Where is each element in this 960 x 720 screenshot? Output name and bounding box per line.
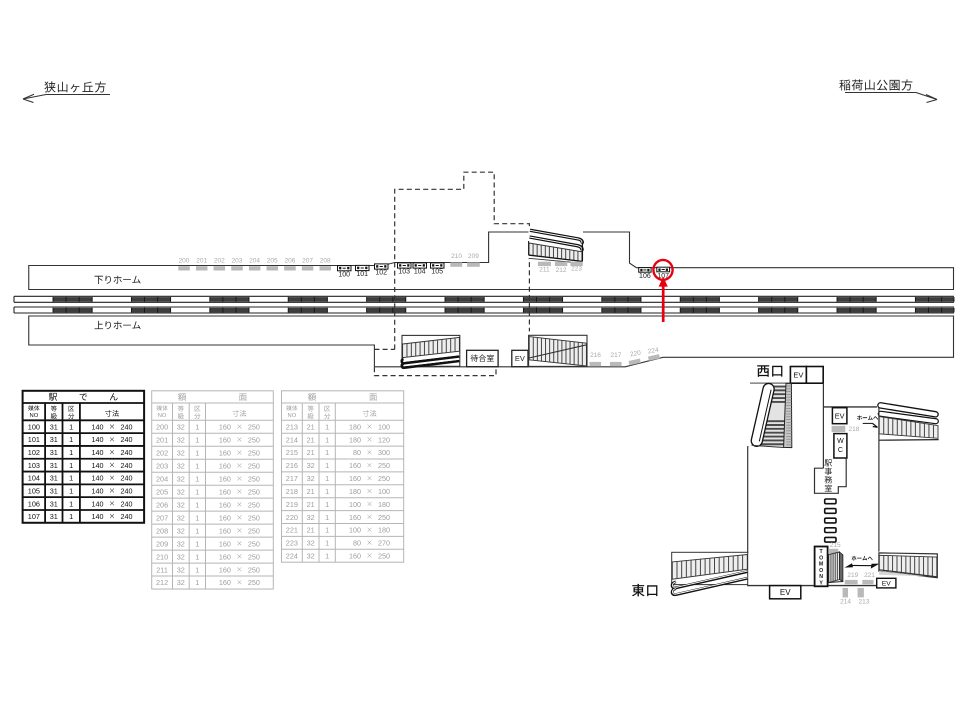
- svg-text:1: 1: [195, 487, 199, 496]
- svg-text:211: 211: [539, 266, 550, 273]
- svg-text:240: 240: [121, 487, 133, 496]
- svg-text:205: 205: [267, 257, 278, 264]
- svg-text:106: 106: [28, 499, 40, 508]
- svg-text:205: 205: [156, 487, 168, 496]
- svg-text:EV: EV: [515, 354, 525, 363]
- svg-text:EV: EV: [780, 588, 791, 597]
- svg-text:31: 31: [50, 422, 58, 431]
- svg-text:1: 1: [195, 552, 199, 561]
- svg-text:218: 218: [848, 426, 859, 433]
- svg-text:201: 201: [156, 436, 168, 445]
- svg-text:21: 21: [307, 448, 315, 457]
- svg-text:32: 32: [177, 513, 185, 522]
- svg-text:221: 221: [286, 526, 298, 535]
- svg-text:107: 107: [28, 512, 40, 521]
- svg-text:32: 32: [177, 500, 185, 509]
- svg-text:100: 100: [349, 500, 361, 509]
- svg-text:223: 223: [571, 266, 582, 273]
- svg-text:31: 31: [50, 499, 58, 508]
- svg-text:250: 250: [378, 461, 390, 470]
- svg-text:102: 102: [28, 448, 40, 457]
- svg-text:W: W: [837, 438, 844, 445]
- svg-text:212: 212: [556, 267, 567, 274]
- svg-text:80: 80: [353, 539, 361, 548]
- svg-text:270: 270: [378, 539, 390, 548]
- svg-text:32: 32: [307, 461, 315, 470]
- svg-text:32: 32: [307, 552, 315, 561]
- svg-text:31: 31: [50, 435, 58, 444]
- svg-text:200: 200: [156, 423, 168, 432]
- svg-text:209: 209: [468, 253, 479, 260]
- svg-text:214: 214: [286, 435, 298, 444]
- svg-text:240: 240: [121, 422, 133, 431]
- svg-text:101: 101: [356, 271, 368, 278]
- svg-text:160: 160: [349, 513, 361, 522]
- svg-text:1: 1: [325, 513, 329, 522]
- svg-text:32: 32: [307, 539, 315, 548]
- svg-text:140: 140: [92, 512, 104, 521]
- svg-text:1: 1: [195, 565, 199, 574]
- svg-text:220: 220: [286, 513, 298, 522]
- svg-text:216: 216: [286, 461, 298, 470]
- svg-text:208: 208: [156, 526, 168, 535]
- svg-text:1: 1: [195, 448, 199, 457]
- svg-text:215: 215: [286, 448, 298, 457]
- svg-text:1: 1: [69, 512, 73, 521]
- svg-text:160: 160: [349, 552, 361, 561]
- svg-text:250: 250: [248, 578, 260, 587]
- svg-text:32: 32: [307, 474, 315, 483]
- svg-text:100: 100: [378, 422, 390, 431]
- svg-text:NO: NO: [288, 413, 297, 419]
- svg-text:106: 106: [639, 273, 651, 280]
- svg-text:250: 250: [248, 448, 260, 457]
- svg-text:1: 1: [325, 526, 329, 535]
- svg-text:160: 160: [219, 436, 231, 445]
- svg-text:32: 32: [177, 565, 185, 574]
- svg-text:160: 160: [219, 474, 231, 483]
- svg-text:240: 240: [121, 499, 133, 508]
- svg-text:210: 210: [156, 552, 168, 561]
- svg-text:250: 250: [248, 539, 260, 548]
- svg-text:32: 32: [177, 578, 185, 587]
- svg-text:180: 180: [378, 500, 390, 509]
- svg-text:1: 1: [69, 448, 73, 457]
- svg-text:31: 31: [50, 474, 58, 483]
- svg-text:207: 207: [302, 257, 313, 264]
- svg-text:32: 32: [177, 552, 185, 561]
- svg-text:101: 101: [28, 435, 40, 444]
- svg-text:240: 240: [121, 474, 133, 483]
- svg-text:160: 160: [219, 448, 231, 457]
- svg-text:1: 1: [325, 487, 329, 496]
- svg-text:160: 160: [219, 552, 231, 561]
- svg-text:250: 250: [378, 513, 390, 522]
- svg-text:1: 1: [69, 461, 73, 470]
- svg-text:21: 21: [307, 435, 315, 444]
- svg-text:31: 31: [50, 512, 58, 521]
- svg-text:32: 32: [177, 474, 185, 483]
- svg-text:207: 207: [156, 513, 168, 522]
- svg-text:C: C: [838, 447, 843, 454]
- svg-text:140: 140: [92, 422, 104, 431]
- svg-text:250: 250: [248, 565, 260, 574]
- svg-text:1: 1: [325, 448, 329, 457]
- svg-text:N: N: [819, 574, 823, 580]
- svg-text:EV: EV: [882, 581, 892, 588]
- svg-text:203: 203: [231, 257, 242, 264]
- svg-text:203: 203: [156, 461, 168, 470]
- svg-text:180: 180: [349, 435, 361, 444]
- svg-text:250: 250: [248, 474, 260, 483]
- svg-text:1: 1: [195, 539, 199, 548]
- svg-text:1: 1: [325, 500, 329, 509]
- svg-text:160: 160: [219, 565, 231, 574]
- svg-text:213: 213: [286, 422, 298, 431]
- svg-text:1: 1: [195, 526, 199, 535]
- svg-text:240: 240: [121, 461, 133, 470]
- svg-text:31: 31: [50, 487, 58, 496]
- svg-text:160: 160: [219, 578, 231, 587]
- svg-text:1: 1: [325, 552, 329, 561]
- svg-text:1: 1: [69, 474, 73, 483]
- svg-text:160: 160: [219, 526, 231, 535]
- svg-text:100: 100: [338, 271, 350, 278]
- svg-text:213: 213: [858, 599, 869, 606]
- svg-text:31: 31: [50, 448, 58, 457]
- svg-text:180: 180: [349, 487, 361, 496]
- svg-text:140: 140: [92, 474, 104, 483]
- svg-text:140: 140: [92, 448, 104, 457]
- svg-text:32: 32: [177, 526, 185, 535]
- svg-text:160: 160: [219, 513, 231, 522]
- svg-text:1: 1: [69, 435, 73, 444]
- svg-text:160: 160: [219, 423, 231, 432]
- svg-text:250: 250: [248, 487, 260, 496]
- svg-text:100: 100: [378, 487, 390, 496]
- svg-text:204: 204: [156, 474, 168, 483]
- svg-text:102: 102: [375, 270, 387, 277]
- svg-text:160: 160: [219, 500, 231, 509]
- svg-text:224: 224: [286, 552, 298, 561]
- svg-text:250: 250: [248, 461, 260, 470]
- svg-text:250: 250: [378, 474, 390, 483]
- svg-text:211: 211: [156, 565, 168, 574]
- svg-text:103: 103: [28, 461, 40, 470]
- svg-text:104: 104: [28, 474, 40, 483]
- svg-text:M: M: [819, 562, 823, 568]
- svg-text:EV: EV: [793, 371, 803, 380]
- svg-text:215: 215: [830, 542, 841, 549]
- svg-text:160: 160: [349, 474, 361, 483]
- svg-text:140: 140: [92, 487, 104, 496]
- svg-text:1: 1: [325, 539, 329, 548]
- svg-text:32: 32: [177, 448, 185, 457]
- svg-text:240: 240: [121, 512, 133, 521]
- svg-text:221: 221: [864, 572, 875, 579]
- svg-text:O: O: [819, 568, 823, 574]
- svg-text:80: 80: [353, 448, 361, 457]
- svg-text:1: 1: [325, 422, 329, 431]
- svg-text:140: 140: [92, 499, 104, 508]
- svg-text:1: 1: [195, 500, 199, 509]
- svg-text:209: 209: [156, 539, 168, 548]
- svg-text:120: 120: [378, 435, 390, 444]
- svg-text:32: 32: [177, 436, 185, 445]
- svg-text:206: 206: [156, 500, 168, 509]
- svg-text:103: 103: [398, 269, 410, 276]
- svg-text:219: 219: [286, 500, 298, 509]
- svg-text:1: 1: [195, 474, 199, 483]
- svg-text:1: 1: [325, 461, 329, 470]
- svg-text:217: 217: [610, 352, 621, 359]
- svg-text:1: 1: [69, 422, 73, 431]
- svg-text:32: 32: [177, 487, 185, 496]
- svg-text:200: 200: [179, 257, 190, 264]
- svg-text:240: 240: [121, 435, 133, 444]
- svg-text:105: 105: [431, 269, 443, 276]
- svg-text:300: 300: [378, 448, 390, 457]
- svg-text:204: 204: [249, 257, 260, 264]
- svg-text:32: 32: [177, 539, 185, 548]
- svg-text:32: 32: [307, 513, 315, 522]
- svg-text:216: 216: [590, 352, 601, 359]
- svg-text:1: 1: [69, 499, 73, 508]
- svg-text:180: 180: [378, 526, 390, 535]
- svg-text:NO: NO: [30, 413, 39, 419]
- svg-text:140: 140: [92, 435, 104, 444]
- svg-text:100: 100: [349, 526, 361, 535]
- svg-text:1: 1: [325, 474, 329, 483]
- svg-text:201: 201: [196, 257, 207, 264]
- svg-text:208: 208: [320, 257, 331, 264]
- svg-text:180: 180: [349, 422, 361, 431]
- svg-text:202: 202: [156, 448, 168, 457]
- svg-text:140: 140: [92, 461, 104, 470]
- svg-text:250: 250: [378, 552, 390, 561]
- svg-text:160: 160: [219, 487, 231, 496]
- svg-text:217: 217: [286, 474, 298, 483]
- svg-text:32: 32: [177, 461, 185, 470]
- svg-text:240: 240: [121, 448, 133, 457]
- svg-text:219: 219: [847, 572, 858, 579]
- svg-text:EV: EV: [835, 411, 845, 420]
- svg-text:100: 100: [28, 422, 40, 431]
- svg-text:1: 1: [195, 436, 199, 445]
- svg-text:O: O: [819, 555, 823, 561]
- svg-text:250: 250: [248, 552, 260, 561]
- svg-text:250: 250: [248, 436, 260, 445]
- svg-text:1: 1: [69, 487, 73, 496]
- svg-text:21: 21: [307, 500, 315, 509]
- svg-text:250: 250: [248, 513, 260, 522]
- svg-text:Y: Y: [819, 581, 823, 587]
- svg-text:21: 21: [307, 526, 315, 535]
- svg-text:105: 105: [28, 487, 40, 496]
- svg-text:250: 250: [248, 526, 260, 535]
- svg-text:250: 250: [248, 500, 260, 509]
- svg-text:160: 160: [349, 461, 361, 470]
- svg-text:160: 160: [219, 461, 231, 470]
- svg-text:218: 218: [286, 487, 298, 496]
- svg-text:104: 104: [414, 269, 426, 276]
- svg-text:1: 1: [325, 435, 329, 444]
- svg-text:21: 21: [307, 422, 315, 431]
- svg-text:21: 21: [307, 487, 315, 496]
- svg-text:206: 206: [284, 257, 295, 264]
- svg-text:1: 1: [195, 578, 199, 587]
- svg-text:212: 212: [156, 578, 168, 587]
- svg-text:NO: NO: [158, 413, 167, 419]
- svg-text:1: 1: [195, 461, 199, 470]
- svg-text:1: 1: [195, 513, 199, 522]
- svg-text:223: 223: [286, 539, 298, 548]
- svg-text:202: 202: [214, 257, 225, 264]
- svg-text:31: 31: [50, 461, 58, 470]
- svg-text:210: 210: [451, 253, 462, 260]
- svg-text:32: 32: [177, 423, 185, 432]
- svg-text:214: 214: [840, 599, 851, 606]
- svg-text:160: 160: [219, 539, 231, 548]
- svg-text:1: 1: [195, 423, 199, 432]
- svg-text:250: 250: [248, 423, 260, 432]
